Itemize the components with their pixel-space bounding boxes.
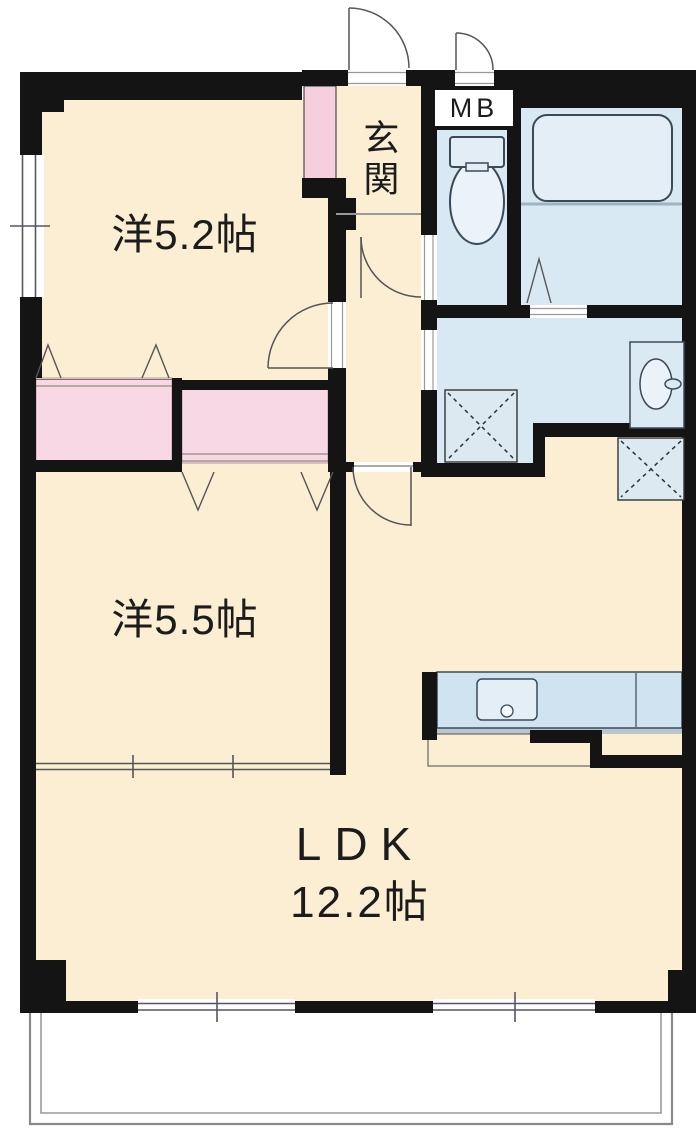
- washbasin-icon: [630, 342, 684, 428]
- room-5-2-door-opening: [328, 302, 346, 368]
- bathroom-door-opening: [530, 305, 587, 318]
- hall-ldk-door-opening: [354, 462, 413, 472]
- room-label-western-5-5: 洋5.5帖: [65, 596, 305, 644]
- appliance-space-icon: [618, 438, 684, 500]
- room-label-western-5-2: 洋5.2帖: [65, 211, 305, 259]
- closet-left: [36, 378, 172, 462]
- toilet-door-opening: [421, 235, 437, 300]
- closet-western-5-2: [304, 86, 336, 180]
- entrance-opening: [348, 70, 406, 86]
- balcony-floor: [30, 1013, 672, 1124]
- meter-box-opening: [455, 70, 494, 86]
- entrance-door-swing: [349, 8, 409, 70]
- closet-right: [182, 385, 328, 463]
- meter-box-label: MB: [433, 93, 515, 124]
- room-label-ldk-size: 12.2帖: [210, 878, 510, 929]
- bathtub-icon: [533, 115, 672, 201]
- kitchen-counter: [437, 672, 682, 728]
- floor-plan: 洋5.2帖 洋5.5帖 玄関 MB LDK 12.2帖: [0, 0, 700, 1138]
- room-label-genkan: 玄関: [358, 100, 399, 220]
- meter-box-door-swing: [456, 33, 493, 70]
- washing-machine-space-icon: [445, 390, 517, 462]
- toilet-icon: [450, 137, 504, 244]
- room-label-ldk: LDK: [230, 818, 490, 871]
- window-left: [10, 155, 50, 297]
- washroom-opening: [421, 330, 437, 390]
- floor-plan-drawing: [0, 0, 700, 1138]
- balcony: [30, 1013, 672, 1124]
